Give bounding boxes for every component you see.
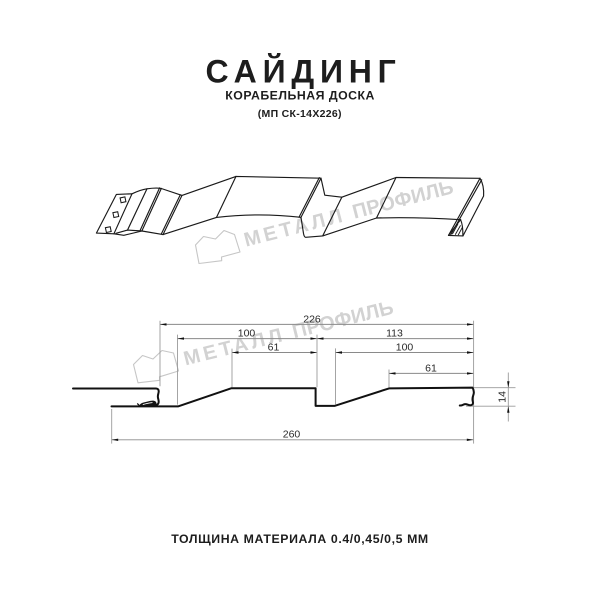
svg-text:226: 226	[303, 313, 321, 325]
svg-text:100: 100	[238, 328, 256, 340]
svg-text:260: 260	[283, 429, 301, 441]
svg-text:МЕТАЛЛПРОФИЛЬ: МЕТАЛЛПРОФИЛЬ	[181, 297, 395, 370]
svg-text:14: 14	[497, 391, 509, 403]
svg-text:САЙДИНГ: САЙДИНГ	[206, 53, 402, 89]
svg-text:ТОЛЩИНА МАТЕРИАЛА 0.4/0,45/0,5: ТОЛЩИНА МАТЕРИАЛА 0.4/0,45/0,5 ММ	[171, 532, 429, 546]
svg-text:100: 100	[396, 341, 414, 353]
svg-text:МЕТАЛЛПРОФИЛЬ: МЕТАЛЛПРОФИЛЬ	[242, 176, 456, 251]
svg-text:КОРАБЕЛЬНАЯ ДОСКА: КОРАБЕЛЬНАЯ ДОСКА	[225, 88, 375, 102]
svg-text:(МП СК-14Х226): (МП СК-14Х226)	[258, 108, 342, 120]
svg-text:61: 61	[268, 341, 280, 353]
svg-text:61: 61	[425, 362, 437, 374]
svg-text:113: 113	[386, 328, 403, 340]
